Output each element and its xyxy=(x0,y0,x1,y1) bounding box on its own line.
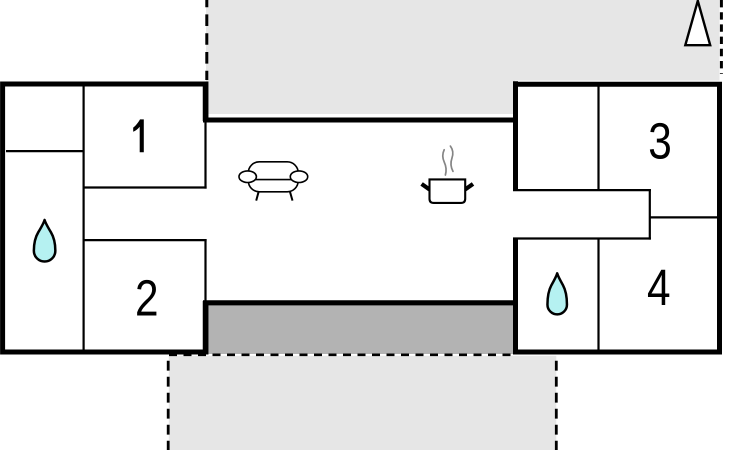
svg-text:3: 3 xyxy=(648,113,672,170)
svg-text:4: 4 xyxy=(647,259,671,316)
svg-text:2: 2 xyxy=(135,270,159,327)
